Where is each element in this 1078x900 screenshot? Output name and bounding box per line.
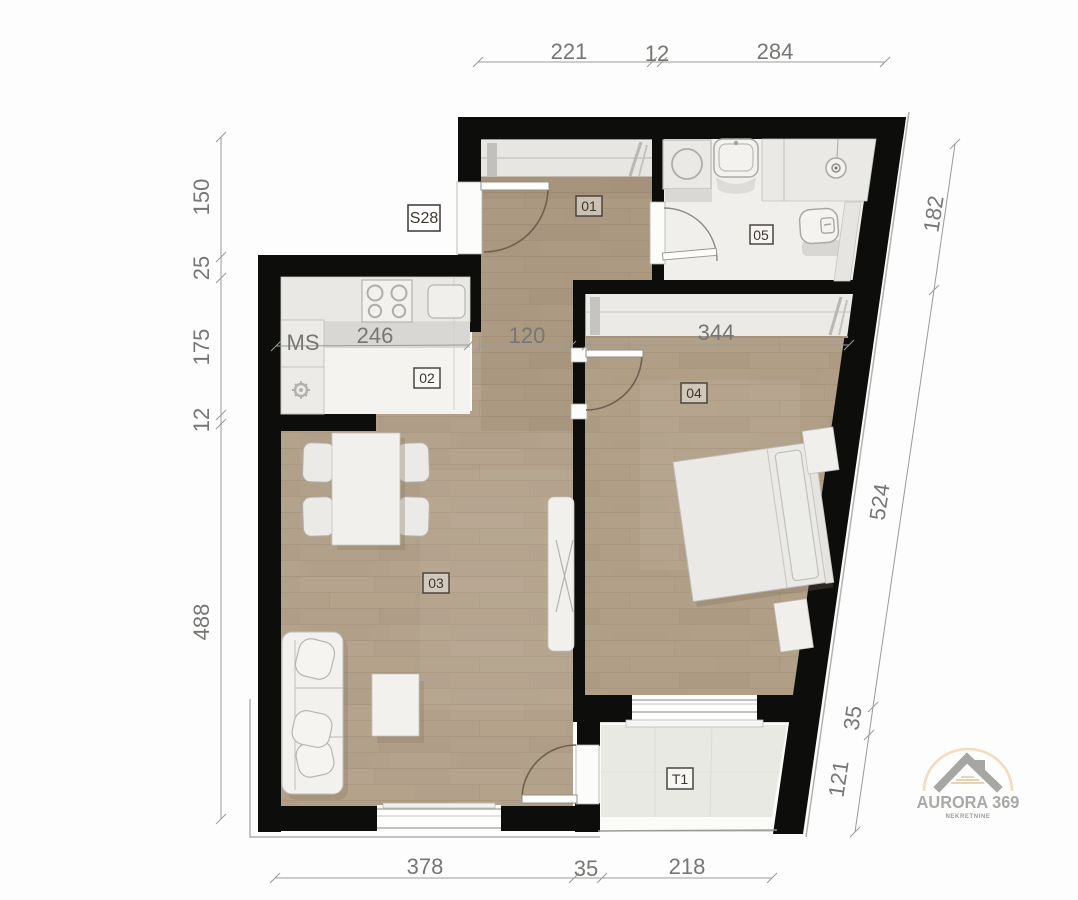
svg-text:221: 221 — [551, 39, 588, 64]
svg-text:NEKRETNINE: NEKRETNINE — [945, 814, 990, 820]
svg-text:AURORA 369: AURORA 369 — [917, 791, 1020, 812]
svg-text:218: 218 — [669, 854, 706, 879]
svg-text:02: 02 — [419, 370, 435, 386]
svg-text:284: 284 — [757, 39, 794, 64]
svg-text:T1: T1 — [672, 771, 689, 787]
svg-text:MS: MS — [287, 330, 320, 355]
svg-text:35: 35 — [574, 856, 598, 881]
svg-text:S28: S28 — [410, 210, 439, 227]
svg-text:246: 246 — [357, 323, 394, 348]
svg-text:378: 378 — [407, 854, 444, 879]
svg-text:120: 120 — [509, 323, 546, 348]
svg-text:01: 01 — [581, 198, 597, 214]
svg-text:175: 175 — [189, 329, 214, 366]
svg-text:05: 05 — [753, 227, 769, 243]
svg-text:12: 12 — [189, 408, 214, 432]
svg-text:12: 12 — [645, 41, 669, 66]
svg-text:04: 04 — [686, 385, 702, 401]
svg-text:03: 03 — [428, 575, 444, 591]
svg-text:25: 25 — [189, 256, 214, 280]
svg-text:344: 344 — [698, 320, 735, 345]
svg-text:488: 488 — [189, 604, 214, 641]
svg-text:35: 35 — [838, 704, 866, 732]
svg-text:150: 150 — [189, 179, 214, 216]
